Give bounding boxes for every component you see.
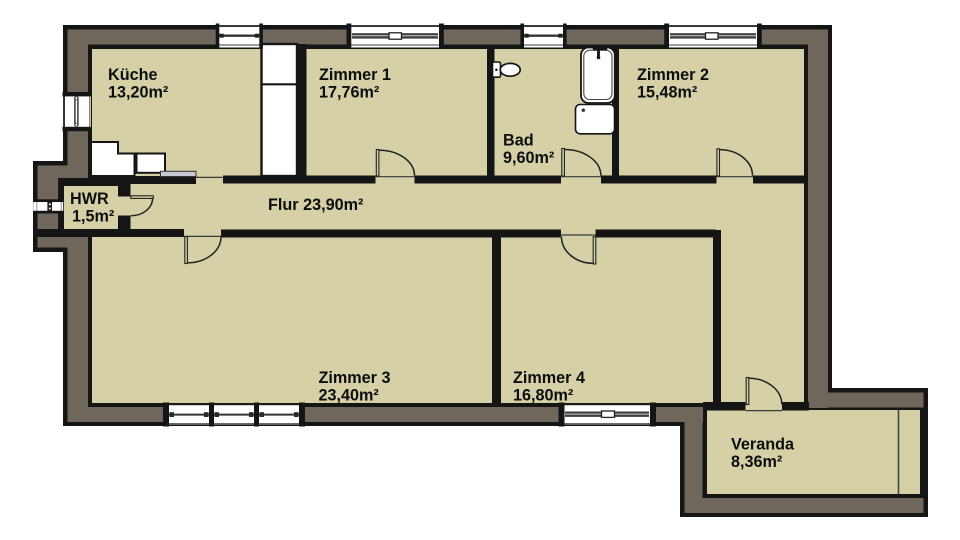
svg-text:13,20m²: 13,20m² (108, 84, 169, 102)
svg-text:Zimmer 3: Zimmer 3 (319, 369, 391, 387)
svg-text:Flur 23,90m²: Flur 23,90m² (268, 196, 364, 214)
svg-text:Zimmer 4: Zimmer 4 (513, 369, 585, 387)
svg-text:Zimmer 1: Zimmer 1 (319, 66, 391, 84)
svg-text:Bad: Bad (503, 132, 534, 150)
svg-text:15,48m²: 15,48m² (637, 84, 698, 102)
svg-text:23,40m²: 23,40m² (319, 387, 380, 405)
svg-text:8,36m²: 8,36m² (731, 453, 783, 471)
svg-text:9,60m²: 9,60m² (503, 149, 555, 167)
svg-text:Veranda: Veranda (731, 436, 795, 454)
svg-text:HWR: HWR (70, 190, 109, 208)
svg-text:16,80m²: 16,80m² (513, 387, 574, 405)
svg-text:1,5m²: 1,5m² (72, 208, 115, 226)
svg-text:17,76m²: 17,76m² (319, 84, 380, 102)
svg-text:Zimmer 2: Zimmer 2 (637, 66, 709, 84)
svg-text:Küche: Küche (108, 66, 157, 84)
